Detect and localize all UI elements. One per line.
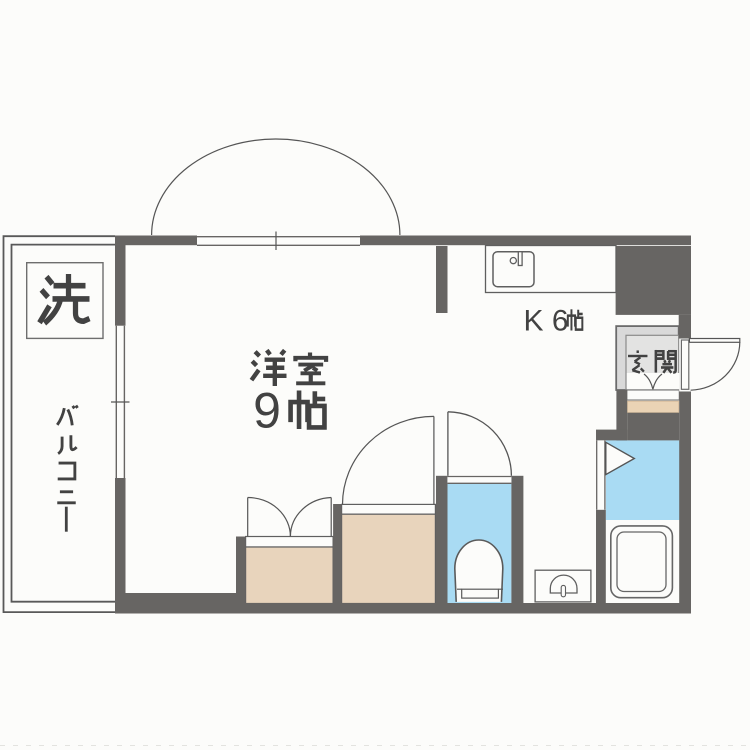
- svg-text:K 6: K 6: [524, 305, 569, 338]
- svg-text:9: 9: [253, 383, 281, 439]
